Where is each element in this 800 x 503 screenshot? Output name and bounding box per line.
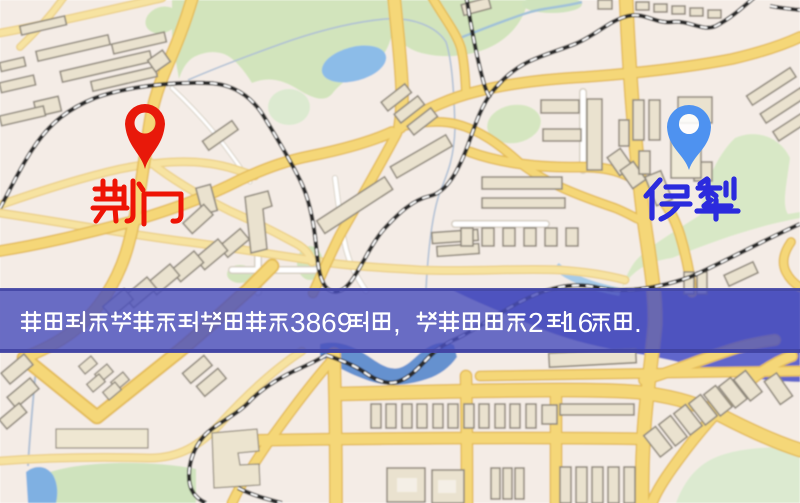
svg-text:2: 2 — [528, 307, 544, 338]
svg-text:3869: 3869 — [290, 307, 352, 338]
svg-text:,: , — [393, 307, 401, 338]
svg-text:.: . — [634, 307, 642, 338]
svg-text:16: 16 — [562, 307, 593, 338]
